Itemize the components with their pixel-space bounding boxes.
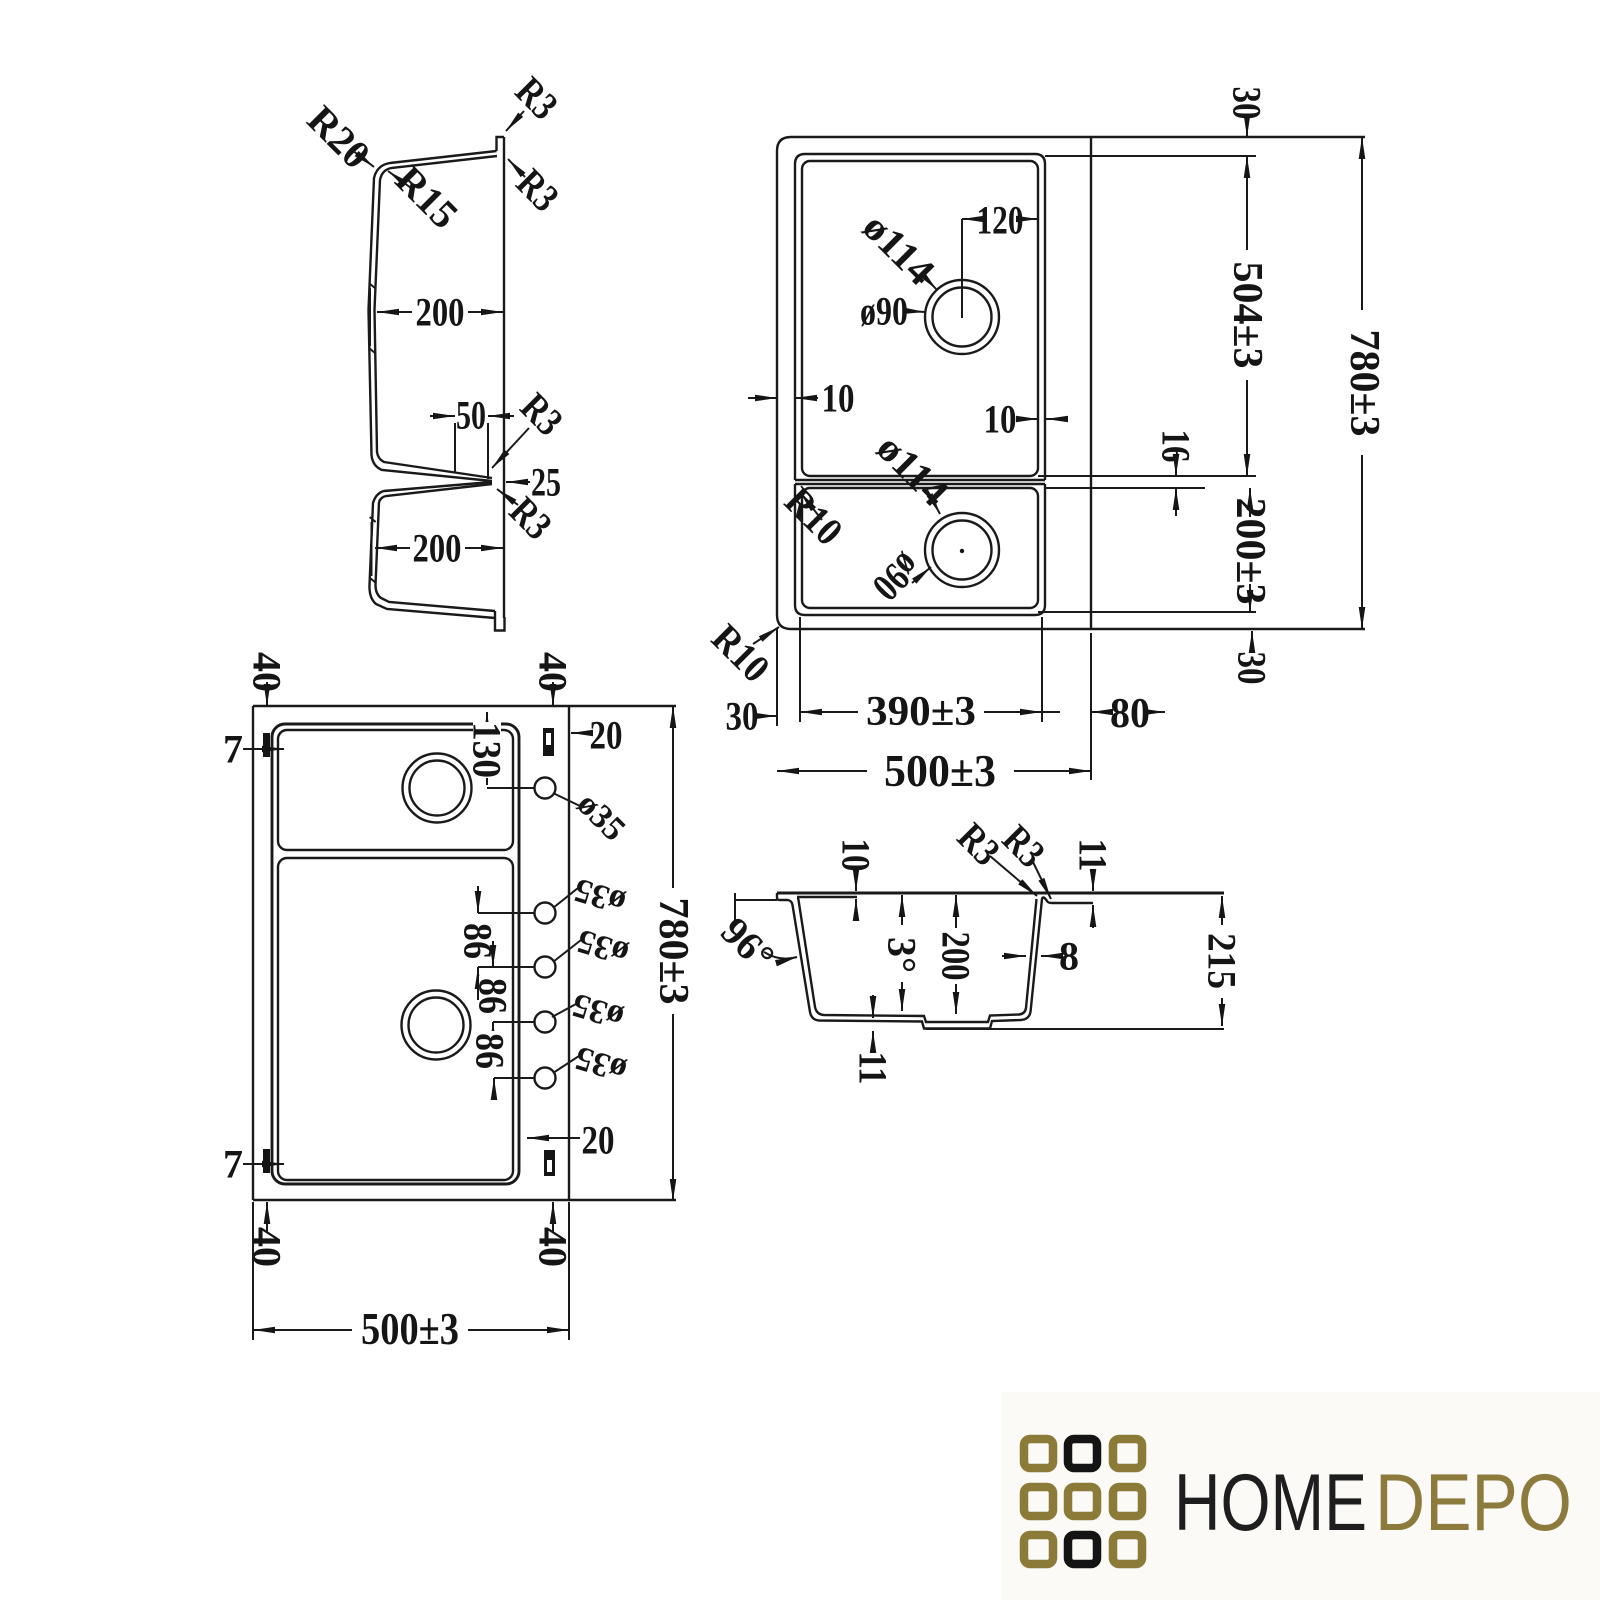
svg-text:86: 86 [471, 978, 516, 1014]
svg-text:10: 10 [984, 397, 1017, 442]
svg-text:11: 11 [1071, 839, 1116, 872]
svg-text:10: 10 [834, 839, 879, 872]
svg-text:8: 8 [1059, 934, 1079, 979]
svg-text:20: 20 [590, 713, 623, 758]
svg-text:10: 10 [822, 376, 855, 421]
svg-text:504±3: 504±3 [1224, 261, 1270, 368]
svg-text:30: 30 [726, 694, 759, 739]
svg-text:40: 40 [245, 1227, 290, 1267]
svg-text:DEPO: DEPO [1375, 1458, 1572, 1548]
svg-text:86: 86 [468, 1033, 513, 1069]
svg-text:215: 215 [1200, 933, 1245, 989]
svg-text:50: 50 [456, 393, 486, 438]
svg-text:500±3: 500±3 [361, 1304, 459, 1354]
svg-text:390±3: 390±3 [866, 689, 976, 735]
svg-text:780±3: 780±3 [1341, 329, 1387, 436]
svg-text:ø90: ø90 [860, 289, 908, 334]
svg-text:200±3: 200±3 [1227, 497, 1273, 604]
svg-text:7: 7 [223, 727, 243, 772]
svg-text:HOME: HOME [1174, 1458, 1367, 1548]
svg-text:500±3: 500±3 [884, 746, 996, 796]
svg-text:200: 200 [416, 290, 465, 335]
svg-text:30: 30 [1230, 652, 1275, 685]
svg-text:80: 80 [1110, 691, 1150, 737]
svg-text:7: 7 [223, 1142, 243, 1187]
svg-text:16: 16 [1154, 430, 1199, 463]
svg-text:200: 200 [934, 932, 979, 981]
svg-text:11: 11 [851, 1052, 896, 1085]
svg-text:120: 120 [977, 198, 1024, 243]
svg-text:200: 200 [413, 526, 462, 571]
svg-text:780±3: 780±3 [650, 897, 696, 1004]
svg-text:30: 30 [1225, 87, 1270, 120]
svg-text:130: 130 [465, 722, 510, 778]
svg-text:20: 20 [582, 1118, 615, 1163]
svg-text:3°: 3° [880, 937, 925, 973]
